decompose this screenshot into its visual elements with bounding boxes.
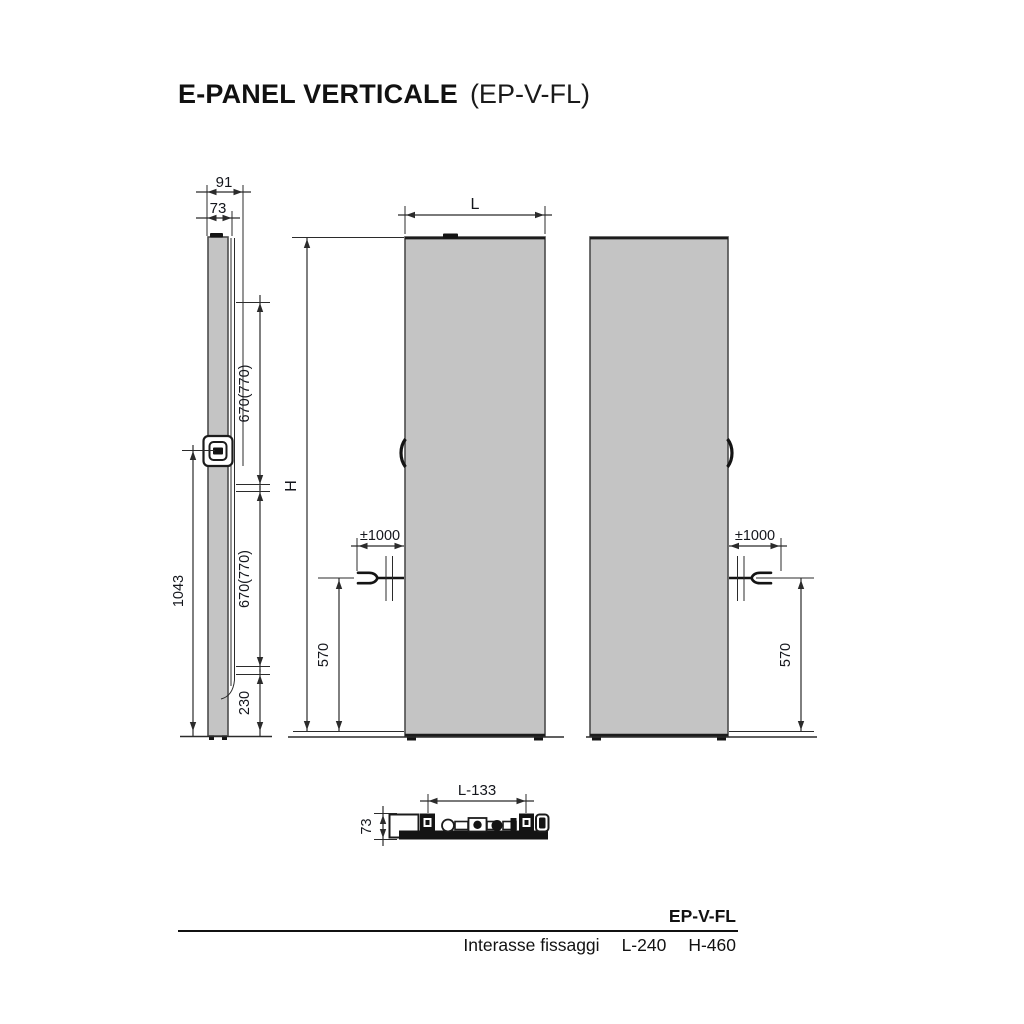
dim-label-width: L: [471, 196, 480, 213]
dim-label-bracket-height: 1043: [171, 575, 187, 607]
spec-sheet-page: E-PANEL VERTICALE (EP-V-FL): [0, 0, 1024, 1024]
arrowhead: [257, 722, 263, 731]
arrowhead: [257, 303, 263, 312]
dim-label-rear-cable-height: 570: [778, 643, 794, 667]
spec-table: EP-V-FL Interasse fissaggi L-240 H-460: [178, 906, 738, 956]
arrowhead: [223, 215, 232, 221]
dim-label-depth-panel: 73: [210, 200, 227, 217]
arrowhead: [190, 451, 196, 460]
section-fixing-bracket-left: [420, 814, 435, 832]
arrowhead: [380, 815, 386, 824]
bottom-section-view: L-133 73: [359, 782, 549, 846]
dim-label-fixing-top: 670(770): [237, 364, 253, 422]
dim-label-bottom-clearance: 230: [237, 691, 253, 715]
arrowhead: [535, 212, 544, 218]
arrowhead: [257, 675, 263, 684]
spec-row-label: Interasse fissaggi: [463, 935, 599, 956]
section-valve-dot: [473, 821, 481, 829]
front-view: L H ±1000 570: [283, 196, 564, 741]
arrowhead: [234, 189, 243, 195]
section-connector-block: [455, 822, 468, 830]
arrowhead: [336, 721, 342, 730]
arrowhead: [304, 721, 310, 730]
arrowhead: [257, 492, 263, 501]
dim-label-bottom-depth: 73: [359, 818, 375, 834]
front-panel-body: [405, 237, 545, 736]
section-fixing-bracket-right: [519, 814, 534, 832]
side-view: 91 73 670(770) 670(770) 230 1043: [171, 174, 272, 740]
arrowhead: [304, 239, 310, 248]
arrowhead: [208, 189, 217, 195]
rear-view: ±1000 570: [586, 237, 817, 741]
dim-label-fixing-width: L-133: [458, 782, 496, 799]
arrowhead: [517, 798, 526, 804]
dim-label-cable-length: ±1000: [360, 528, 400, 544]
arrowhead: [336, 580, 342, 589]
side-panel-top-cap: [210, 233, 223, 238]
arrowhead: [798, 580, 804, 589]
spec-table-row: Interasse fissaggi L-240 H-460: [178, 932, 738, 956]
arrowhead: [429, 798, 438, 804]
dim-label-rear-cable-length: ±1000: [735, 528, 775, 544]
arrowhead: [406, 212, 415, 218]
section-end-cap-core: [539, 818, 546, 829]
rear-panel-body: [590, 237, 728, 736]
technical-drawing: 91 73 670(770) 670(770) 230 1043 L H: [0, 0, 1024, 1024]
arrowhead: [257, 657, 263, 666]
dim-label-depth-total: 91: [216, 174, 233, 191]
spec-value-h: H-460: [688, 935, 736, 956]
dim-label-cable-height: 570: [316, 643, 332, 667]
front-vent-plug: [443, 234, 458, 239]
dim-label-height: H: [283, 480, 300, 492]
side-panel-body: [208, 237, 228, 736]
dim-label-fixing-bottom: 670(770): [237, 550, 253, 608]
section-pipe-connection: [442, 820, 454, 832]
arrowhead: [380, 829, 386, 838]
spec-table-model: EP-V-FL: [178, 906, 738, 930]
arrowhead: [257, 475, 263, 484]
section-pipe-dark: [492, 820, 503, 831]
front-plug-icon: [358, 573, 378, 583]
arrowhead: [190, 722, 196, 731]
section-spacer: [511, 818, 517, 831]
arrowhead: [798, 721, 804, 730]
spec-value-l: L-240: [622, 935, 667, 956]
